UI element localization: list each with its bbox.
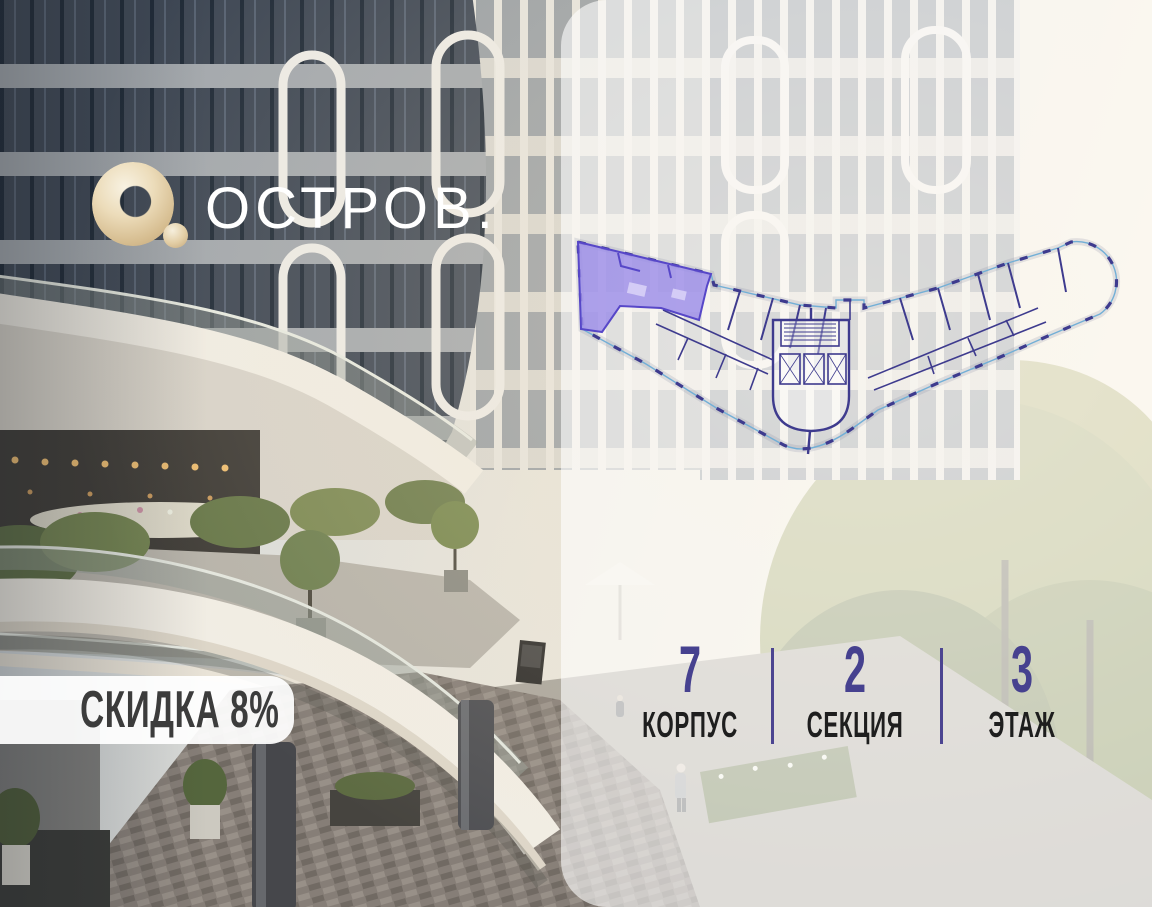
stat-floor-label: ЭТАЖ bbox=[989, 710, 1056, 740]
interior-walls bbox=[656, 248, 1066, 390]
stat-section-label: СЕКЦИЯ bbox=[807, 710, 904, 740]
stat-floor: 3 ЭТАЖ bbox=[968, 642, 1076, 740]
unit-info: 7 КОРПУС 2 СЕКЦИЯ 3 ЭТАЖ bbox=[600, 642, 1070, 754]
discount-badge: СКИДКА 8% bbox=[0, 676, 294, 744]
stat-floor-value: 3 bbox=[990, 642, 1055, 696]
promo-banner: ОСТРОВ. СКИДКА 8% 7 КОРПУС 2 СЕКЦИЯ 3 ЭТ… bbox=[0, 0, 1152, 907]
stat-building-label: КОРПУС bbox=[642, 710, 738, 740]
logo-ring-icon bbox=[92, 162, 174, 246]
brand-wordmark: ОСТРОВ. bbox=[205, 180, 498, 238]
stat-building: 7 КОРПУС bbox=[613, 642, 767, 740]
discount-badge-label: СКИДКА 8% bbox=[80, 680, 279, 740]
stair-core bbox=[773, 300, 850, 454]
floor-plan bbox=[568, 228, 1148, 478]
logo-dot-icon bbox=[163, 223, 188, 248]
stat-divider bbox=[940, 648, 943, 744]
stat-building-value: 7 bbox=[644, 642, 737, 696]
stat-section: 2 СЕКЦИЯ bbox=[777, 642, 933, 740]
stat-divider bbox=[771, 648, 774, 744]
stat-section-value: 2 bbox=[808, 642, 902, 696]
